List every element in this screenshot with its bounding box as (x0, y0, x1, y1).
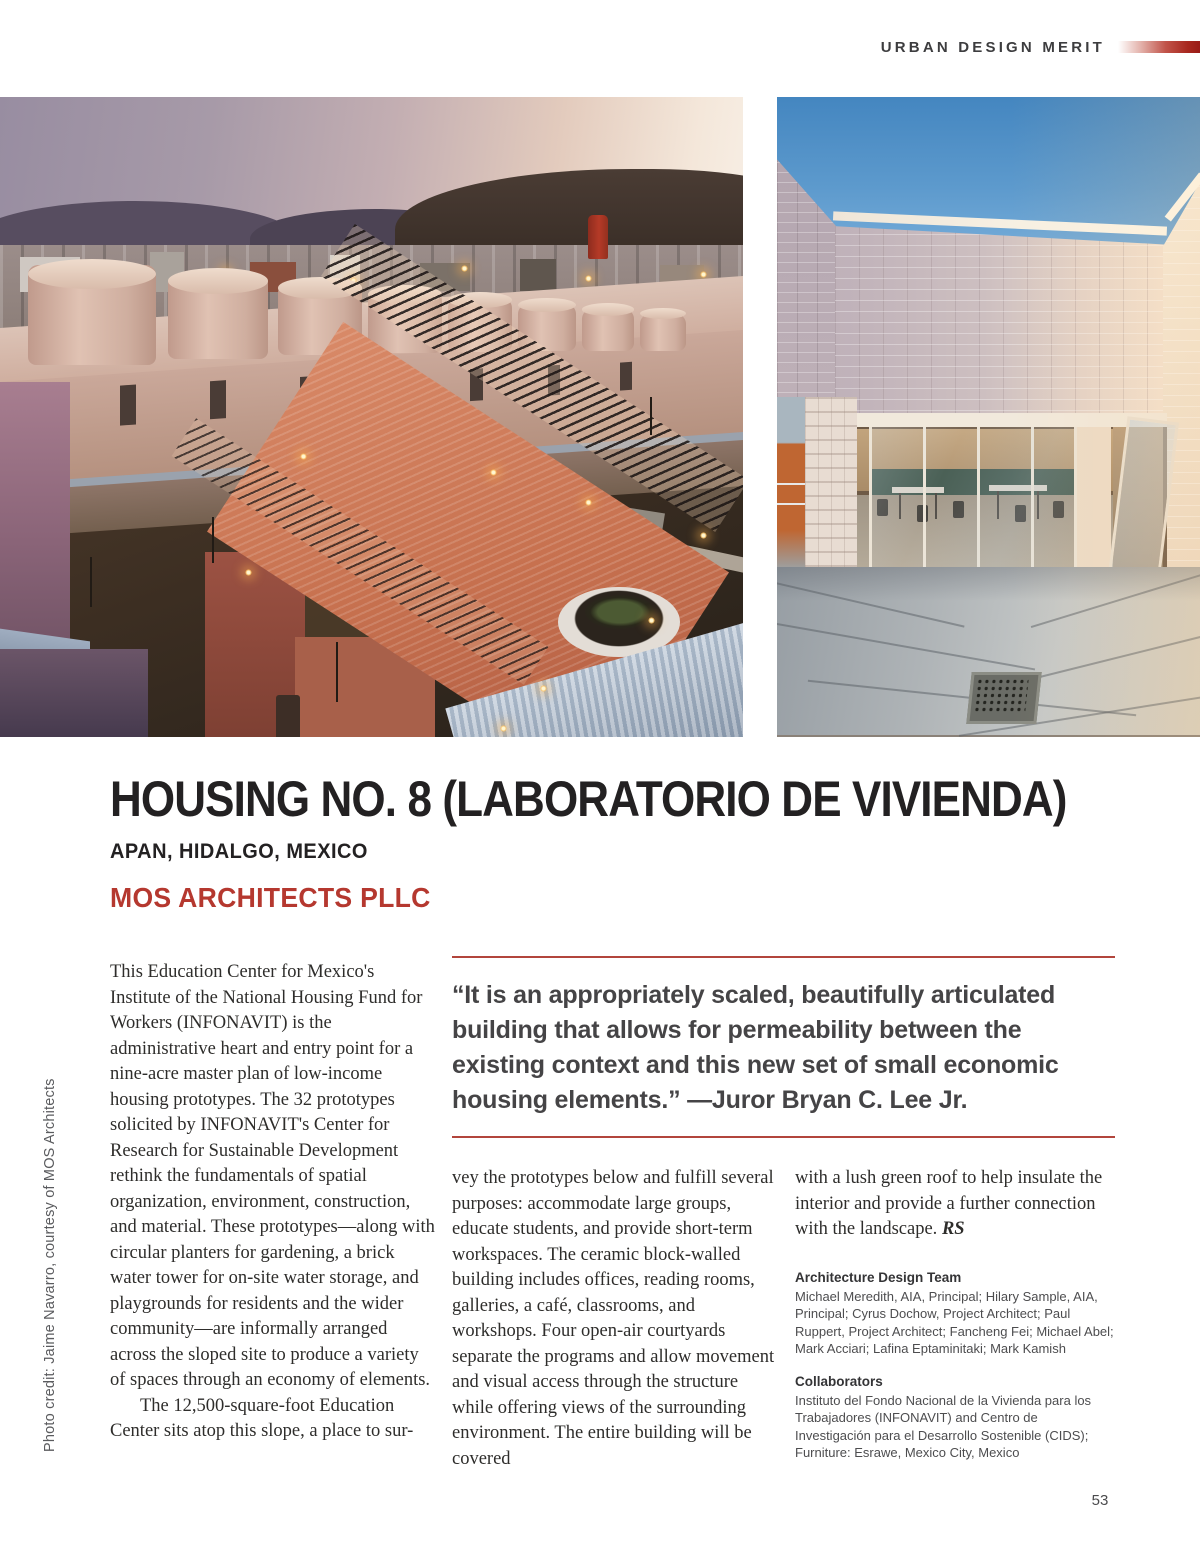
planter-plants (585, 595, 655, 629)
water-drum-top (640, 308, 686, 319)
project-location: APAN, HIDALGO, MEXICO (110, 840, 368, 864)
doorway (620, 362, 632, 391)
credits-heading: Architecture Design Team (795, 1269, 1117, 1286)
path-light (585, 499, 592, 506)
path-light (490, 469, 497, 476)
purple-wall (0, 649, 148, 737)
path-light (300, 453, 307, 460)
path-light (648, 617, 655, 624)
doorway (120, 384, 136, 425)
tree-trunk (90, 557, 92, 607)
kicker-red-bar (1118, 41, 1200, 53)
water-drum (168, 274, 268, 359)
aerial-dusk-photo (0, 97, 743, 737)
tree-trunk (212, 517, 214, 563)
credits-body: Michael Meredith, AIA, Principal; Hilary… (795, 1288, 1117, 1358)
credits-body: Instituto del Fondo Nacional de la Vivie… (795, 1392, 1117, 1462)
water-drum (28, 265, 156, 365)
photo-credit: Photo credit: Jaime Navarro, courtesy of… (42, 1050, 58, 1452)
pull-quote: “It is an appropriately scaled, beautifu… (452, 956, 1115, 1138)
street-light (585, 275, 592, 282)
body-paragraph: This Education Center for Mexico's Insti… (110, 960, 435, 1394)
water-drum (582, 309, 634, 351)
tree-trunk (336, 642, 338, 702)
credits-block: Architecture Design Team Michael Meredit… (795, 1269, 1117, 1462)
water-drum-top (518, 298, 576, 312)
doorway (210, 380, 226, 419)
firm-name: MOS ARCHITECTS PLLC (110, 882, 431, 914)
water-drum (640, 314, 686, 351)
body-paragraph: The 12,500-square-foot Education Center … (110, 1394, 435, 1445)
path-light (245, 569, 252, 576)
section-kicker: URBAN DESIGN MERIT (881, 39, 1105, 56)
water-drum-top (168, 268, 268, 294)
page-number: 53 (1080, 1492, 1120, 1509)
railing (777, 503, 805, 505)
water-drum-top (582, 303, 634, 316)
building-door (276, 695, 300, 737)
pull-quote-text: “It is an appropriately scaled, beautifu… (452, 978, 1115, 1118)
body-column-1: This Education Center for Mexico's Insti… (110, 960, 435, 1445)
page-title: HOUSING NO. 8 (LABORATORIO DE VIVIENDA) (110, 774, 1067, 824)
tree-trunk (650, 397, 652, 435)
body-paragraph: vey the prototypes below and fulfill sev… (452, 1166, 776, 1472)
body-paragraph: with a lush green roof to help insulate … (795, 1166, 1117, 1243)
path-light (500, 725, 507, 732)
author-initials: RS (942, 1219, 965, 1239)
street-light (700, 271, 707, 278)
path-light (540, 685, 547, 692)
street-light (461, 265, 468, 272)
railing (777, 483, 805, 485)
town-building (520, 259, 556, 291)
red-water-tower (588, 215, 608, 259)
credits-heading: Collaborators (795, 1373, 1117, 1390)
body-column-2: vey the prototypes below and fulfill sev… (452, 1166, 776, 1472)
block-pier-texture (805, 397, 857, 572)
courtyard-photo (777, 97, 1200, 737)
path-light (700, 532, 707, 539)
magazine-page: URBAN DESIGN MERIT (0, 0, 1200, 1558)
body-column-3: with a lush green roof to help insulate … (795, 1166, 1117, 1477)
sunlight-overlay (1010, 97, 1200, 737)
water-drum-top (28, 259, 156, 289)
